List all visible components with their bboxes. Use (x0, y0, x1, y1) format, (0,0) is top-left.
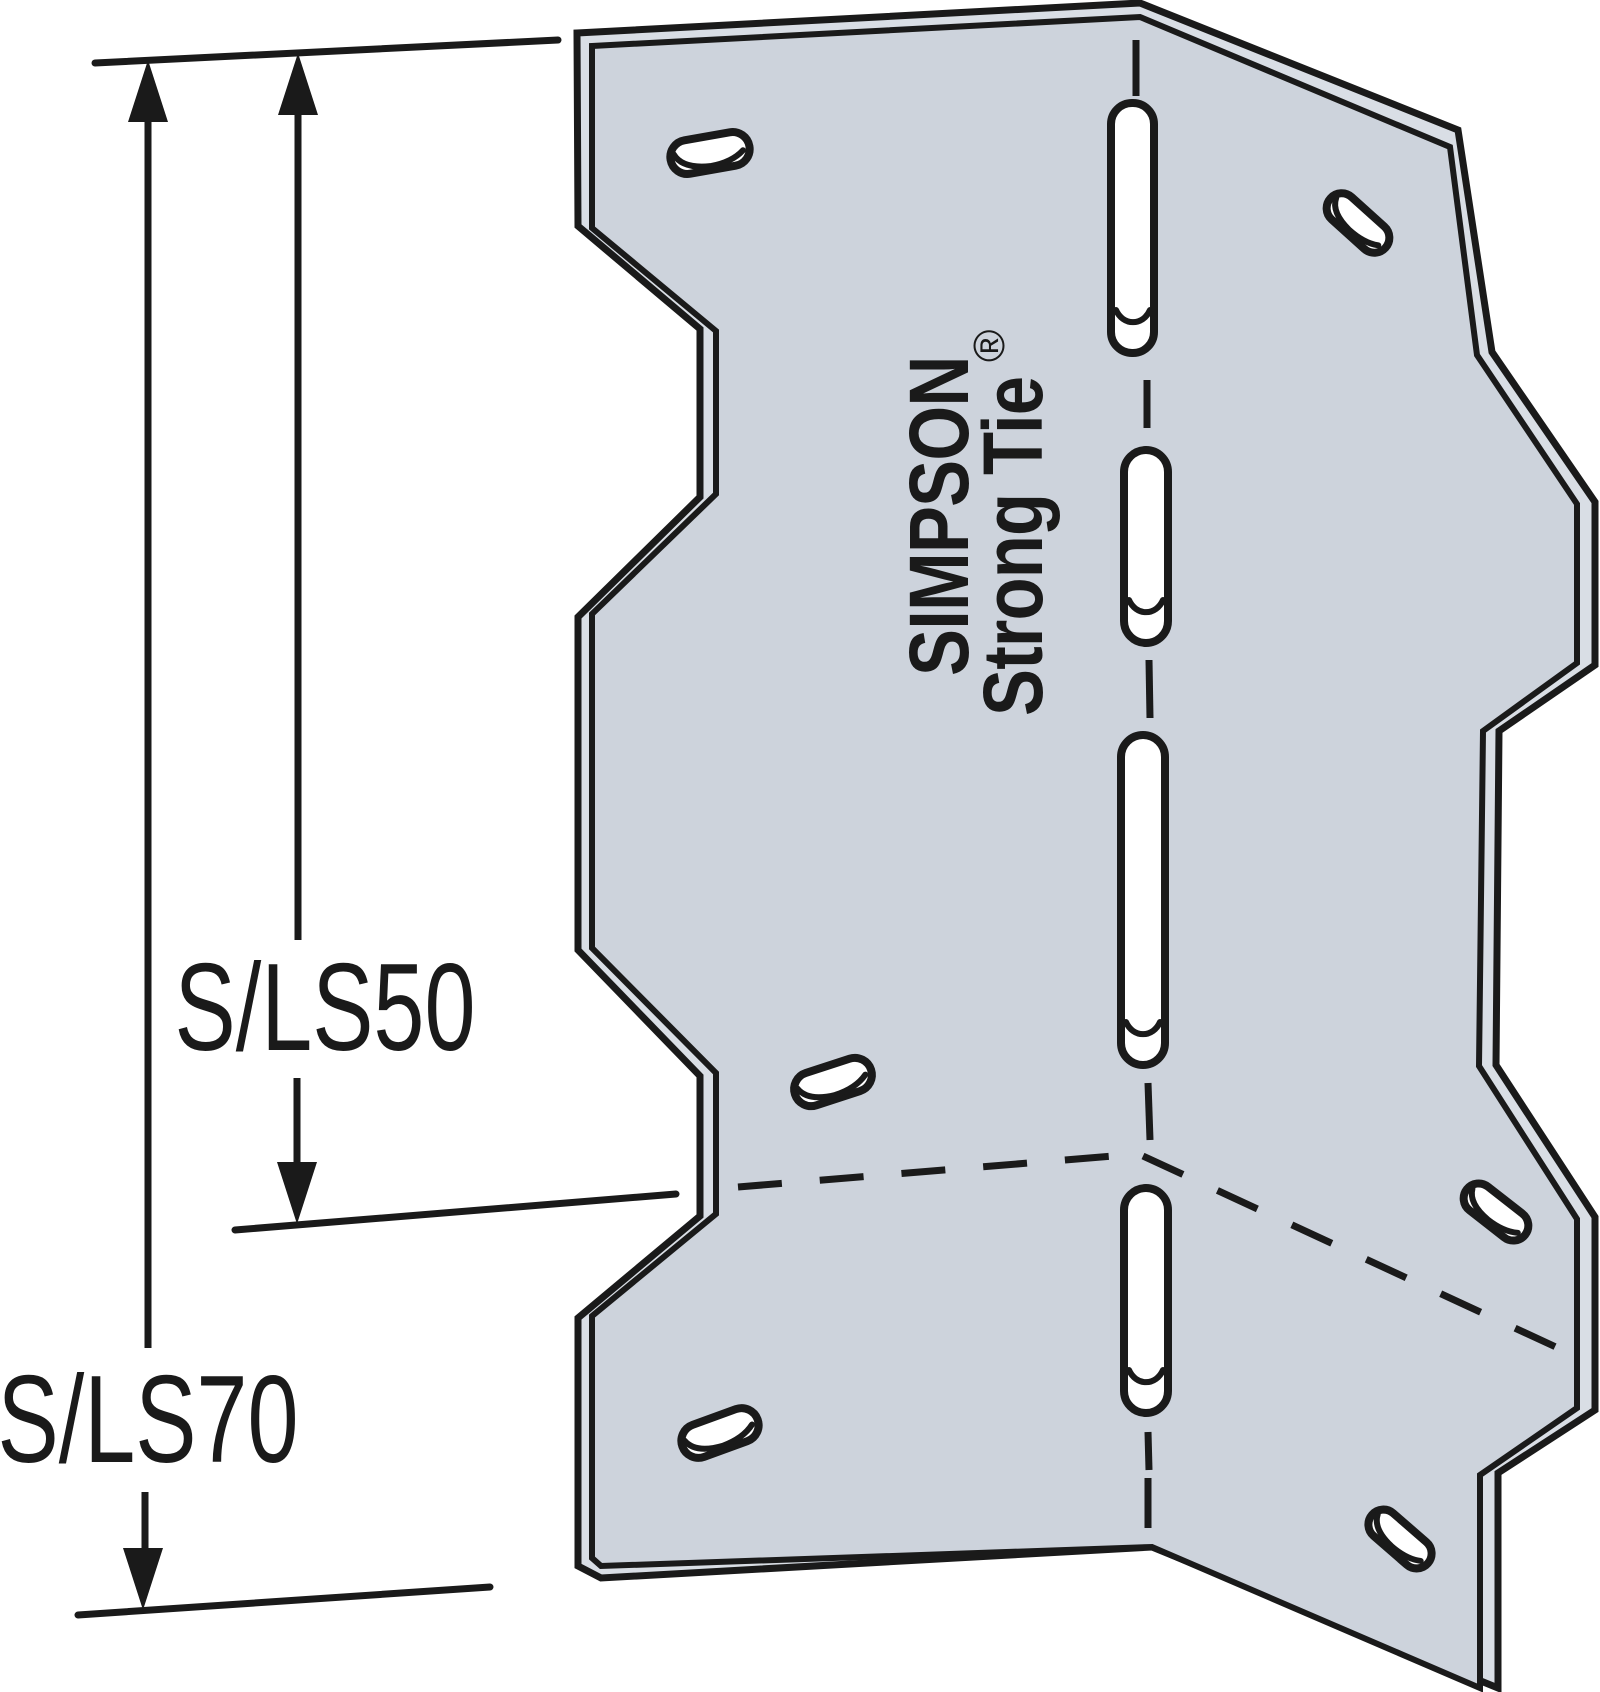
bracket-diagram: SIMPSON Strong Tie ® S/LS50 S/LS70 (0, 0, 1600, 1692)
bend-slot (1111, 103, 1154, 353)
bend-slot (1124, 1188, 1168, 1413)
bend-slot (1121, 735, 1165, 1065)
dimension-sls50: S/LS50 (175, 53, 476, 1224)
dimension-label-sls50: S/LS50 (175, 939, 476, 1078)
bend-slot (1124, 450, 1168, 643)
arrow-down-icon (123, 1548, 163, 1610)
dimension-sls70: S/LS70 (0, 60, 298, 1610)
extension-line-top (95, 40, 558, 63)
bracket-plate: SIMPSON Strong Tie ® (577, 3, 1595, 1688)
arrow-down-icon (277, 1162, 317, 1224)
diagram-canvas: SIMPSON Strong Tie ® S/LS50 S/LS70 (0, 0, 1600, 1692)
brand-line2: Strong Tie (967, 377, 1060, 716)
brand-stamp: SIMPSON Strong Tie ® (893, 330, 1060, 716)
registered-trademark-icon: ® (965, 330, 1014, 362)
dimension-label-sls70: S/LS70 (0, 1351, 298, 1490)
